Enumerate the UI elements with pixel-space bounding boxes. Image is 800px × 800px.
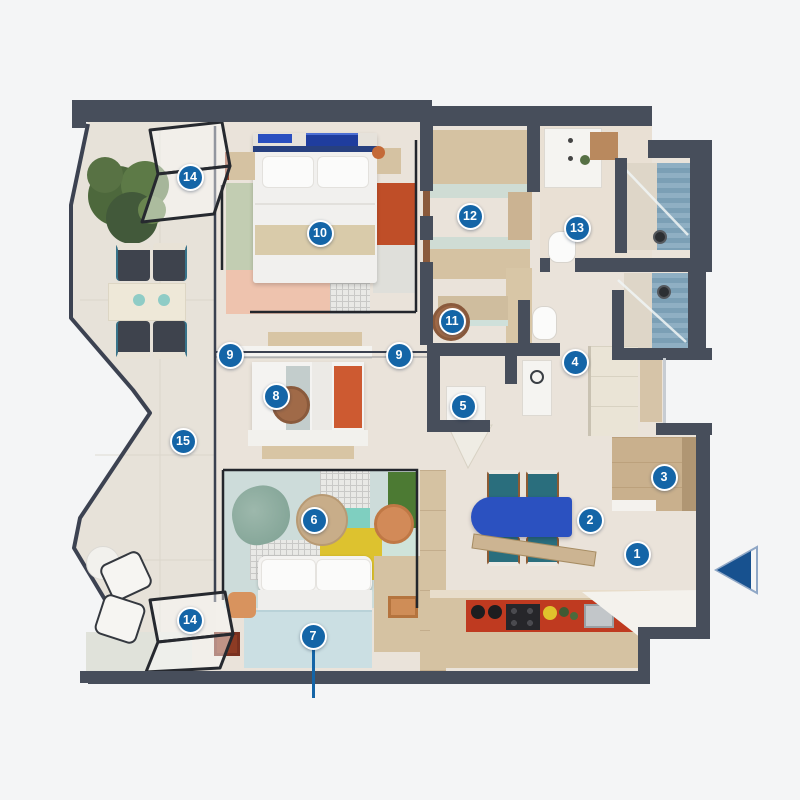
room-marker-6[interactable]: 6 xyxy=(301,507,328,534)
shower-head xyxy=(657,285,671,299)
duvet-line xyxy=(255,203,375,205)
desk-divider xyxy=(312,362,332,434)
room-marker-4[interactable]: 4 xyxy=(562,349,589,376)
dining-table xyxy=(471,497,572,537)
wall xyxy=(615,158,627,253)
rug-gray xyxy=(373,245,417,293)
dining-chair xyxy=(526,470,559,500)
wall-top xyxy=(72,100,432,122)
wall-top-right xyxy=(432,106,652,126)
pot xyxy=(488,605,502,619)
sink xyxy=(584,604,614,628)
storage-front xyxy=(612,500,656,511)
cup xyxy=(158,294,170,306)
pocket-door xyxy=(423,191,430,216)
outdoor-table xyxy=(108,283,186,321)
facade-cut xyxy=(652,121,700,141)
wall-divider xyxy=(420,216,433,240)
shower2-floor xyxy=(624,273,652,348)
wall-bottom-notch xyxy=(72,683,88,692)
wardrobe-top xyxy=(428,130,530,198)
room-marker-9[interactable]: 9 xyxy=(386,342,413,369)
bed-blue-band xyxy=(253,146,377,152)
wall-divider xyxy=(420,121,433,191)
dining-chair xyxy=(487,536,520,566)
wall xyxy=(518,300,530,343)
room-marker-2[interactable]: 2 xyxy=(577,507,604,534)
plant-pot xyxy=(372,146,385,159)
plant-small xyxy=(559,607,569,617)
room-marker-9[interactable]: 9 xyxy=(217,342,244,369)
room-marker-14[interactable]: 14 xyxy=(177,607,204,634)
pouf xyxy=(228,592,256,618)
desk-base-wood xyxy=(262,446,354,459)
faucet-dot xyxy=(568,156,573,161)
washing-machine xyxy=(522,360,552,416)
cooktop xyxy=(506,604,540,630)
room-marker-12[interactable]: 12 xyxy=(457,203,484,230)
wall-right xyxy=(696,423,710,633)
plant-small xyxy=(580,155,590,165)
facade-cut xyxy=(650,639,698,673)
nightstand xyxy=(225,152,255,180)
wall xyxy=(612,348,712,360)
wall xyxy=(427,420,490,432)
wall-bottom xyxy=(80,671,640,684)
side-table-red xyxy=(214,632,240,656)
pillow xyxy=(262,156,314,188)
wall xyxy=(427,343,560,356)
room-marker-13[interactable]: 13 xyxy=(564,215,591,242)
headboard-books xyxy=(306,133,358,146)
washer-door xyxy=(530,370,544,384)
sliding-partition xyxy=(240,346,372,359)
room-marker-7[interactable]: 7 xyxy=(300,623,327,650)
shower-head xyxy=(653,230,667,244)
dining-chair xyxy=(487,470,520,500)
dining-chair xyxy=(526,536,559,566)
desk-base xyxy=(248,430,368,446)
room-marker-5[interactable]: 5 xyxy=(450,393,477,420)
facade-notch xyxy=(666,357,706,425)
tray xyxy=(388,596,418,618)
room-marker-15[interactable]: 15 xyxy=(170,428,197,455)
sofa-seat xyxy=(258,590,372,612)
floorplan-canvas: 123456789910111213141415 xyxy=(0,0,800,800)
outdoor-chair xyxy=(153,243,187,281)
room-marker-10[interactable]: 10 xyxy=(307,220,334,247)
notch-window xyxy=(663,358,666,423)
wall-top-stub xyxy=(72,100,86,128)
sofa-cushion xyxy=(261,559,316,591)
rug-orange xyxy=(373,183,417,245)
bed xyxy=(253,133,377,283)
wall xyxy=(688,258,706,358)
closet-column xyxy=(508,192,532,240)
pot xyxy=(471,605,485,619)
pouf xyxy=(374,504,414,544)
cup xyxy=(133,294,145,306)
shower2-tiles xyxy=(652,273,688,348)
vanity-shelf-wood xyxy=(590,132,618,160)
wall xyxy=(540,258,550,272)
room-marker-8[interactable]: 8 xyxy=(263,383,290,410)
wall xyxy=(690,140,712,260)
sofa-back xyxy=(258,556,372,592)
counter-strip xyxy=(640,358,662,422)
room-marker-3[interactable]: 3 xyxy=(651,464,678,491)
outdoor-chair xyxy=(116,321,150,359)
faucet-dot xyxy=(568,138,573,143)
room-marker-11[interactable]: 11 xyxy=(439,308,466,335)
toilet xyxy=(532,306,557,340)
pillow xyxy=(317,156,369,188)
pocket-door xyxy=(423,240,430,262)
wall xyxy=(505,356,517,384)
kettle xyxy=(543,606,557,620)
wall-divider xyxy=(420,262,433,345)
plant-small xyxy=(570,612,578,620)
headboard-decor-blue xyxy=(258,134,292,143)
wall xyxy=(427,343,440,432)
sofa-cushion xyxy=(316,559,371,591)
outdoor-chair xyxy=(116,243,150,281)
terrace-slab xyxy=(86,632,192,672)
outdoor-chair xyxy=(153,321,187,359)
desk-panel-orange xyxy=(334,366,362,428)
room-marker-1[interactable]: 1 xyxy=(624,541,651,568)
wall xyxy=(638,627,710,639)
room-marker-14[interactable]: 14 xyxy=(177,164,204,191)
wall xyxy=(527,106,540,192)
